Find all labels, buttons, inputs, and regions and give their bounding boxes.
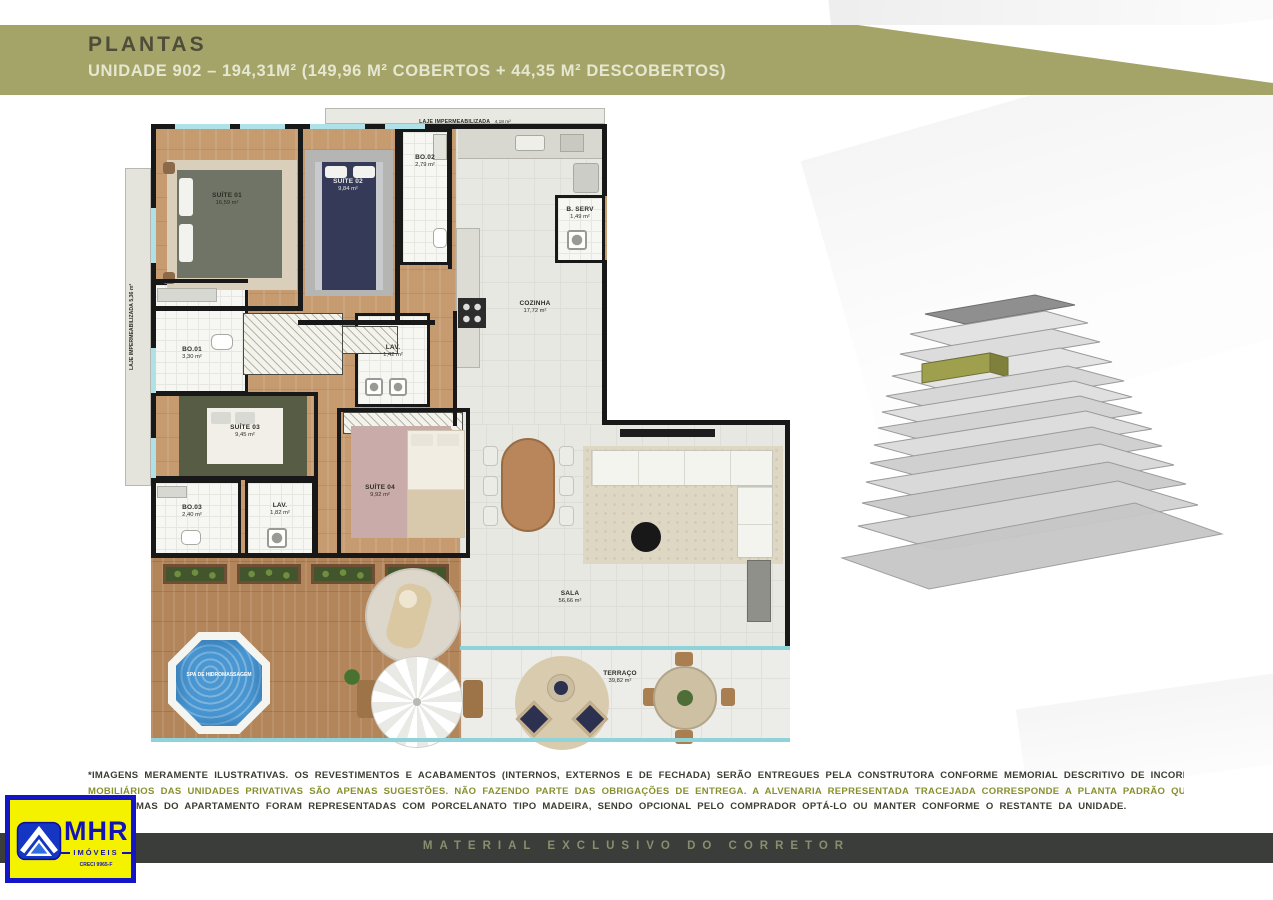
chair [721, 688, 735, 706]
chair [559, 506, 574, 526]
room-bo01-label: BO.01 3,30 m² [157, 346, 227, 361]
mhr-imoveis-logo: MHR IMÓVEIS CRECI 9965-F [5, 795, 136, 883]
pillow [437, 434, 459, 446]
spa-label: SPA DE HIDROMASSAGEM [173, 672, 265, 679]
disclaimer-line-3: MAS DO APARTAMENTO FORAM REPRESENTADAS C… [88, 799, 1184, 815]
room-suite02-label: SUÍTE 02 9,84 m² [303, 178, 393, 193]
chair [675, 652, 693, 666]
chaise-pillow [399, 590, 417, 608]
glass-railing [151, 738, 790, 742]
sofa [591, 450, 773, 486]
spa-water [176, 640, 262, 726]
fridge [573, 163, 599, 193]
laje-left-label: LAJE IMPERMEABILIZADA 5,36 m² [129, 169, 149, 485]
oven [560, 134, 584, 152]
table-decor [554, 681, 568, 695]
room-bo02-label: BO.02 2,79 m² [398, 154, 452, 169]
washer [267, 528, 287, 548]
room-suite01-label: SUÍTE 01 16,59 m² [177, 192, 277, 207]
unit-subtitle: UNIDADE 902 – 194,31M² (149,96 M² COBERT… [88, 62, 726, 81]
chair [559, 476, 574, 496]
sofa-chaise [737, 486, 773, 558]
room-cozinha-label: COZINHA 17,72 m² [495, 300, 575, 315]
chair [483, 476, 498, 496]
floor-plan: LAJE IMPERMEABILIZADA 5,36 m² LAJE IMPER… [115, 108, 795, 758]
building-floors-stack-diagram [830, 268, 1230, 608]
room-sala-label: SALA 56,66 m² [530, 590, 610, 605]
room-lav01-label: LAV. 1,42 m² [358, 344, 428, 359]
pillow [235, 412, 255, 424]
bath-counter [157, 486, 187, 498]
page-title: PLANTAS [88, 33, 207, 57]
terrace-floor [461, 648, 790, 742]
dash-left [60, 852, 70, 854]
centerpiece [677, 690, 693, 706]
dryer [389, 378, 407, 396]
chair [559, 446, 574, 466]
brochure-page: PLANTAS UNIDADE 902 – 194,31M² (149,96 M… [0, 0, 1273, 900]
room-suite04-label: SUÍTE 04 9,92 m² [345, 484, 415, 499]
disclaimer-line-2: MOBILIÁRIOS DAS UNIDADES PRIVATIVAS SÃO … [88, 784, 1184, 800]
laje-left-strip: LAJE IMPERMEABILIZADA 5,36 m² [125, 168, 151, 486]
planter [311, 564, 375, 584]
tv-panel [620, 429, 715, 437]
legal-disclaimer: *IMAGENS MERAMENTE ILUSTRATIVAS. OS REVE… [88, 768, 1184, 815]
planter [163, 564, 227, 584]
umbrella-pole [413, 698, 421, 706]
chair [483, 506, 498, 526]
pillow [353, 166, 375, 178]
pillow [325, 166, 347, 178]
pillow [179, 224, 193, 262]
room-terraco-label: TERRAÇO 39,82 m² [580, 670, 660, 685]
bed-suite04 [407, 430, 465, 538]
washer [567, 230, 587, 250]
glass-partition [460, 646, 790, 650]
mhr-house-icon [16, 818, 62, 864]
floor-slabs-icon [830, 268, 1230, 608]
bath-counter [157, 288, 217, 302]
nightstand [163, 162, 175, 174]
logo-subtitle: IMÓVEIS [60, 848, 132, 857]
room-lav02-label: LAV. 1,82 m² [247, 502, 313, 517]
planter [237, 564, 301, 584]
coffee-table [631, 522, 661, 552]
chair [463, 680, 483, 718]
sideboard [747, 560, 771, 622]
room-bserv-label: B. SERV 1,49 m² [553, 206, 607, 221]
toilet [433, 228, 447, 248]
logo-creci: CRECI 9965-F [60, 862, 132, 868]
toilet [181, 530, 201, 545]
plant [343, 668, 361, 686]
laje-top-label: LAJE IMPERMEABILIZADA 4,18 m² [325, 109, 605, 129]
dash-right [122, 852, 132, 854]
chair [483, 446, 498, 466]
disclaimer-line-1: *IMAGENS MERAMENTE ILUSTRATIVAS. OS REVE… [88, 768, 1184, 784]
logo-name: MHR [64, 816, 129, 847]
pillow [411, 434, 433, 446]
room-bo03-label: BO.03 2,40 m² [157, 504, 227, 519]
pillow [211, 412, 231, 424]
cooktop [458, 298, 486, 328]
dining-table [501, 438, 555, 532]
sink [515, 135, 545, 151]
washer [365, 378, 383, 396]
room-suite03-label: SUÍTE 03 9,45 m² [203, 424, 287, 439]
footer-bar-text: MATERIAL EXCLUSIVO DO CORRETOR [0, 840, 1273, 852]
